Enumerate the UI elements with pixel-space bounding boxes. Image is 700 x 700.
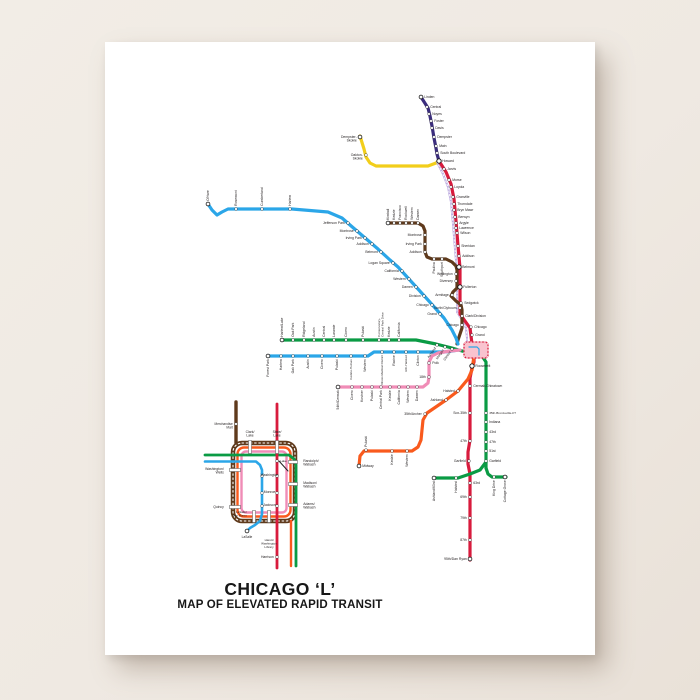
- map-title: CHICAGO ‘L’: [105, 579, 455, 600]
- page-background: { "poster": { "title": "CHICAGO \u2018L\…: [0, 0, 700, 700]
- map-subtitle: MAP OF ELEVATED RAPID TRANSIT: [105, 599, 455, 611]
- poster-card: [105, 42, 595, 655]
